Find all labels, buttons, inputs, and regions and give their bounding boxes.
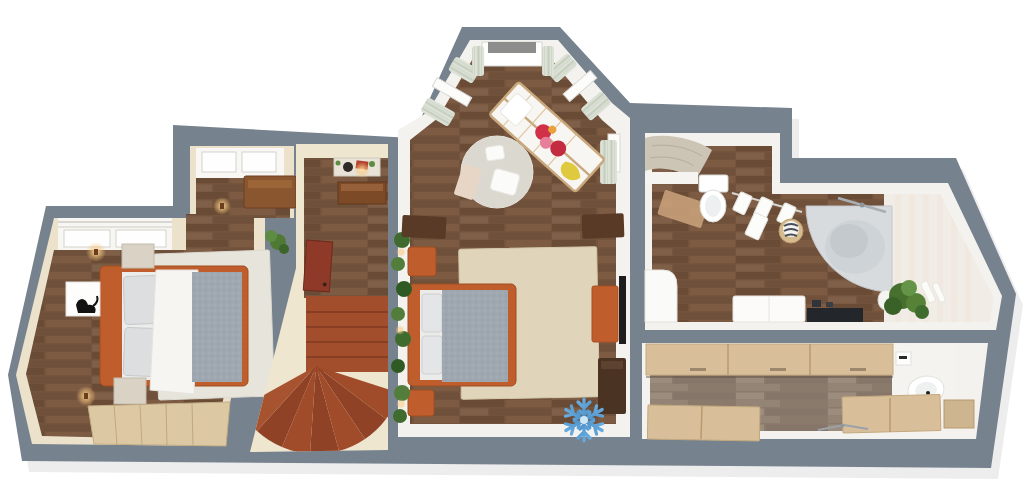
ceiling-lamp — [354, 162, 370, 178]
vanity — [733, 296, 805, 322]
string-light — [396, 247, 406, 257]
floorplan-svg — [0, 0, 1024, 496]
cat-wall-art — [66, 282, 100, 316]
wall-lamp — [213, 197, 231, 215]
desk — [401, 215, 446, 239]
wall-lamp — [76, 386, 96, 406]
wooden-bench — [244, 176, 296, 208]
towel-basket — [779, 219, 803, 243]
string-light — [395, 325, 405, 335]
toilet — [699, 175, 728, 222]
desk — [582, 213, 625, 238]
room-nursery — [391, 40, 630, 437]
white-duvet — [150, 270, 198, 394]
bed — [100, 266, 248, 394]
pedestal — [645, 270, 677, 322]
pillow — [422, 336, 442, 374]
wall-lamp — [86, 242, 106, 262]
console-shelf — [338, 182, 386, 204]
nightstand — [122, 244, 154, 268]
pillow — [422, 294, 442, 332]
lower-cabinets-left — [647, 405, 760, 441]
string-light — [396, 399, 406, 409]
nightstand — [114, 378, 146, 404]
roller-shade — [488, 42, 536, 53]
window — [64, 230, 110, 247]
end-cabinet — [944, 400, 974, 428]
straight-flight — [306, 296, 388, 372]
media-console — [592, 286, 618, 342]
curtain — [472, 46, 484, 76]
open-door[interactable] — [303, 240, 332, 292]
room-kitchen — [642, 343, 988, 441]
cistern — [699, 175, 728, 192]
wall-tv — [619, 276, 626, 344]
ledge — [646, 172, 698, 184]
floor-cushion — [485, 145, 505, 161]
floorplan-canvas — [0, 0, 1024, 496]
nook-window — [196, 148, 284, 178]
bedroom-window-band — [58, 218, 172, 250]
dark-shelf — [598, 358, 626, 414]
nightstand — [408, 247, 436, 276]
curtain — [542, 46, 554, 76]
bay-center-window — [482, 42, 542, 66]
upper-cabinets — [646, 344, 893, 377]
nursery-bed — [408, 284, 516, 386]
nightstand — [408, 390, 434, 416]
wardrobe — [88, 402, 230, 446]
